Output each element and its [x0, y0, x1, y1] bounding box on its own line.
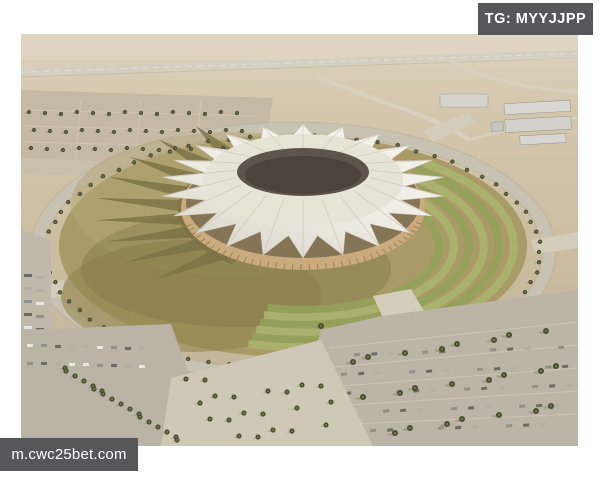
- stadium-photo: [21, 34, 578, 446]
- telegram-watermark-text: TG: MYYJJPP: [485, 11, 586, 27]
- telegram-watermark-badge: TG: MYYJJPP: [478, 3, 593, 35]
- website-watermark-text: m.cwc25bet.com: [11, 446, 126, 463]
- stadium-aerial-render: [21, 34, 578, 446]
- website-watermark-badge: m.cwc25bet.com: [0, 438, 138, 471]
- watermarked-photo-page: { "photo": { "alt": "Aerial architectura…: [0, 0, 600, 480]
